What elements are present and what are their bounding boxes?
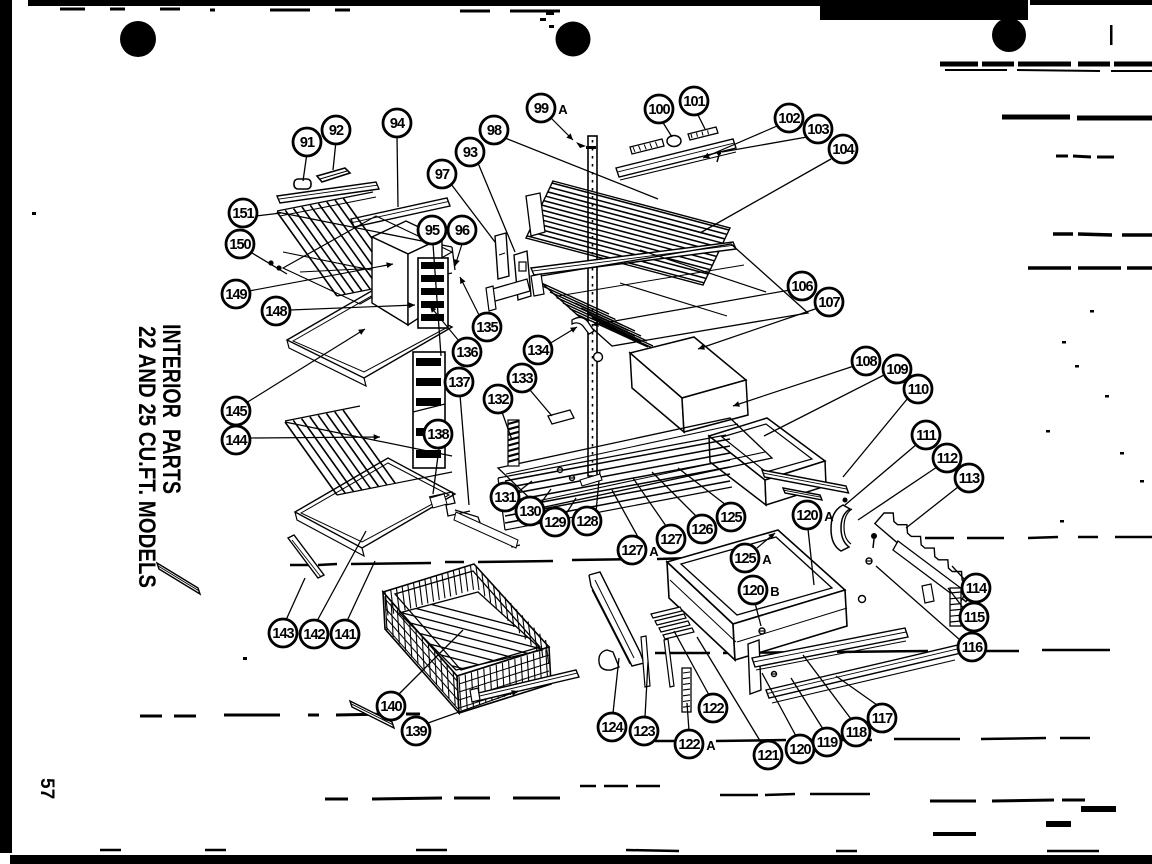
svg-text:118: 118 xyxy=(846,725,867,741)
svg-text:104: 104 xyxy=(832,142,854,158)
svg-text:151: 151 xyxy=(232,206,254,222)
svg-text:92: 92 xyxy=(329,123,344,139)
svg-text:126: 126 xyxy=(691,522,713,538)
svg-text:150: 150 xyxy=(229,237,251,253)
svg-text:140: 140 xyxy=(380,699,402,715)
svg-text:99: 99 xyxy=(534,101,549,117)
svg-text:138: 138 xyxy=(427,427,449,443)
svg-text:120: 120 xyxy=(796,508,818,524)
svg-text:133: 133 xyxy=(511,371,533,387)
svg-text:112: 112 xyxy=(937,451,958,467)
svg-text:A: A xyxy=(558,102,568,117)
svg-text:113: 113 xyxy=(959,471,980,487)
svg-text:119: 119 xyxy=(817,735,838,751)
svg-text:57: 57 xyxy=(36,778,57,799)
svg-text:101: 101 xyxy=(683,94,705,110)
svg-text:143: 143 xyxy=(272,626,294,642)
svg-text:148: 148 xyxy=(265,304,287,320)
svg-text:108: 108 xyxy=(855,354,877,370)
svg-text:127: 127 xyxy=(621,543,643,559)
svg-text:116: 116 xyxy=(962,640,983,656)
svg-text:134: 134 xyxy=(527,343,549,359)
svg-text:129: 129 xyxy=(544,515,566,531)
svg-text:142: 142 xyxy=(303,627,325,643)
svg-text:110: 110 xyxy=(908,382,929,398)
svg-text:103: 103 xyxy=(807,122,829,138)
svg-text:97: 97 xyxy=(435,167,450,183)
svg-text:139: 139 xyxy=(405,724,427,740)
svg-text:93: 93 xyxy=(463,145,478,161)
svg-text:124: 124 xyxy=(601,720,623,736)
svg-text:145: 145 xyxy=(225,404,247,420)
svg-text:107: 107 xyxy=(818,295,840,311)
svg-text:127: 127 xyxy=(660,532,682,548)
svg-text:109: 109 xyxy=(886,362,908,378)
svg-text:121: 121 xyxy=(757,748,779,764)
svg-text:INTERIOR PARTS: INTERIOR PARTS xyxy=(157,324,185,494)
svg-text:135: 135 xyxy=(476,320,498,336)
svg-text:B: B xyxy=(770,584,779,599)
svg-text:125: 125 xyxy=(720,510,742,526)
svg-text:102: 102 xyxy=(778,111,800,127)
svg-text:A: A xyxy=(706,738,716,753)
svg-text:A: A xyxy=(762,552,772,567)
svg-text:115: 115 xyxy=(964,610,985,626)
svg-text:94: 94 xyxy=(390,116,405,132)
svg-text:120: 120 xyxy=(789,742,811,758)
svg-text:131: 131 xyxy=(494,490,516,506)
svg-text:144: 144 xyxy=(225,433,247,449)
svg-text:22 AND 25 CU.FT. MODELS: 22 AND 25 CU.FT. MODELS xyxy=(133,326,160,588)
svg-text:137: 137 xyxy=(448,375,470,391)
svg-text:120: 120 xyxy=(742,583,764,599)
svg-text:149: 149 xyxy=(225,287,247,303)
svg-text:128: 128 xyxy=(576,514,598,530)
svg-text:122: 122 xyxy=(702,701,724,717)
svg-text:111: 111 xyxy=(916,428,937,444)
svg-text:100: 100 xyxy=(648,102,670,118)
svg-text:130: 130 xyxy=(519,504,541,520)
svg-text:125: 125 xyxy=(734,551,756,567)
svg-text:96: 96 xyxy=(455,223,470,239)
svg-text:98: 98 xyxy=(487,123,502,139)
svg-text:A: A xyxy=(824,509,834,524)
svg-text:141: 141 xyxy=(334,627,356,643)
svg-text:117: 117 xyxy=(872,711,893,727)
svg-text:123: 123 xyxy=(633,724,655,740)
svg-text:91: 91 xyxy=(300,135,315,151)
svg-text:132: 132 xyxy=(487,392,509,408)
svg-text:114: 114 xyxy=(966,581,987,597)
svg-text:95: 95 xyxy=(425,223,440,239)
svg-text:106: 106 xyxy=(791,279,813,295)
svg-text:136: 136 xyxy=(456,345,478,361)
svg-text:122: 122 xyxy=(678,737,700,753)
